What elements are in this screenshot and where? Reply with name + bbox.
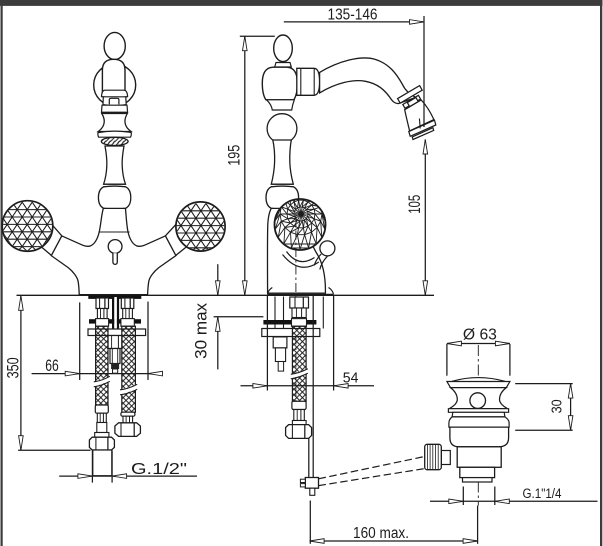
svg-text:66: 66 bbox=[45, 357, 59, 375]
svg-text:350: 350 bbox=[4, 357, 22, 378]
svg-text:G.1"1/4: G.1"1/4 bbox=[523, 486, 562, 501]
svg-text:G.1/2": G.1/2" bbox=[131, 461, 187, 478]
svg-text:30: 30 bbox=[549, 399, 565, 413]
svg-text:135-146: 135-146 bbox=[328, 6, 378, 23]
svg-text:160 max.: 160 max. bbox=[353, 525, 409, 542]
svg-text:54: 54 bbox=[343, 370, 359, 387]
svg-text:105: 105 bbox=[406, 195, 424, 214]
svg-text:Ø 63: Ø 63 bbox=[463, 326, 497, 343]
svg-text:30 max: 30 max bbox=[193, 302, 211, 359]
svg-text:195: 195 bbox=[226, 145, 244, 166]
